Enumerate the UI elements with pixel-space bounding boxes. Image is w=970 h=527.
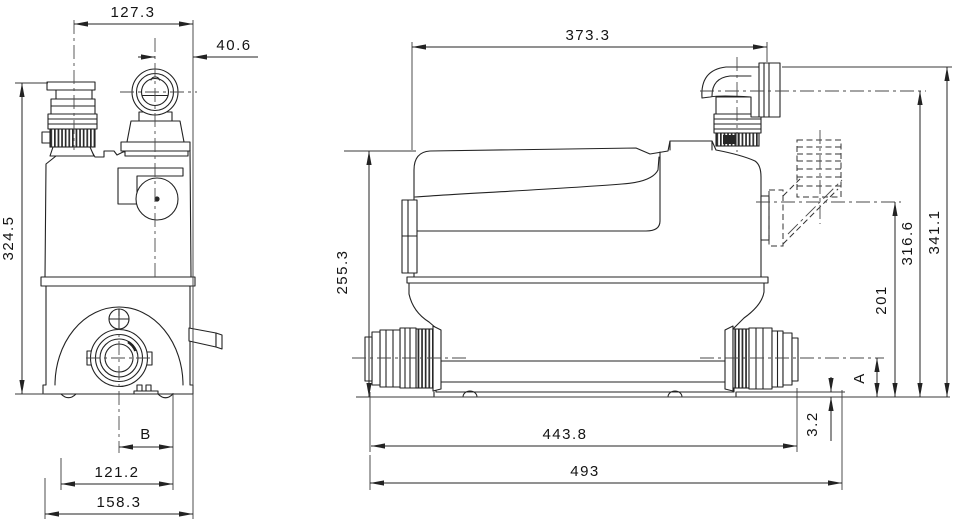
side-right-hose-clamp: [733, 329, 749, 388]
side-outlet-elbow: [702, 63, 780, 146]
dim-side-a: A: [851, 372, 868, 384]
elbow-hose-clamp: [716, 133, 759, 146]
front-inlet-connector: [42, 82, 97, 156]
front-view: [41, 69, 222, 398]
front-mid-band: [41, 277, 195, 286]
front-foot-right: [158, 394, 173, 398]
side-inlet-right: [725, 326, 798, 391]
front-foot-left: [61, 394, 76, 398]
dim-front-outlet-offset: 40.6: [216, 37, 251, 54]
side-tank-upper: [414, 141, 761, 277]
dim-front-base-width: 158.3: [96, 494, 141, 511]
dim-side-connector-span: 443.8: [542, 426, 587, 443]
dim-side-base-clearance: 3.2: [804, 411, 821, 436]
dim-front-b: B: [140, 426, 152, 443]
side-tank-lower: [409, 283, 764, 397]
side-cable-box: [402, 200, 417, 273]
dim-front-top-width: 127.3: [110, 4, 155, 21]
front-outlet-elbow: [121, 69, 190, 156]
dim-side-body-height: 255.3: [334, 249, 351, 294]
dim-side-overall-height: 341.1: [926, 209, 943, 254]
side-left-hose-clamp: [416, 329, 433, 388]
dim-front-foot-span: 121.2: [94, 464, 139, 481]
front-tank-lower: [43, 286, 222, 398]
dim-side-overall-length: 493: [570, 463, 600, 480]
technical-drawing-page: 127.3 40.6 324.5 B 121.2 158.3 373.3 255…: [0, 0, 970, 527]
dim-side-outlet-height: 316.6: [899, 220, 916, 265]
side-inlet-left: [365, 326, 441, 391]
side-view: [365, 63, 841, 397]
pump-dimension-drawing: 127.3 40.6 324.5 B 121.2 158.3 373.3 255…: [0, 0, 970, 527]
dim-side-top-length: 373.3: [565, 27, 610, 44]
side-mid-band: [407, 277, 768, 283]
dim-side-alt-outlet-height: 201: [873, 285, 890, 315]
front-hose-clamp: [50, 129, 95, 147]
dim-front-height: 324.5: [0, 215, 17, 260]
